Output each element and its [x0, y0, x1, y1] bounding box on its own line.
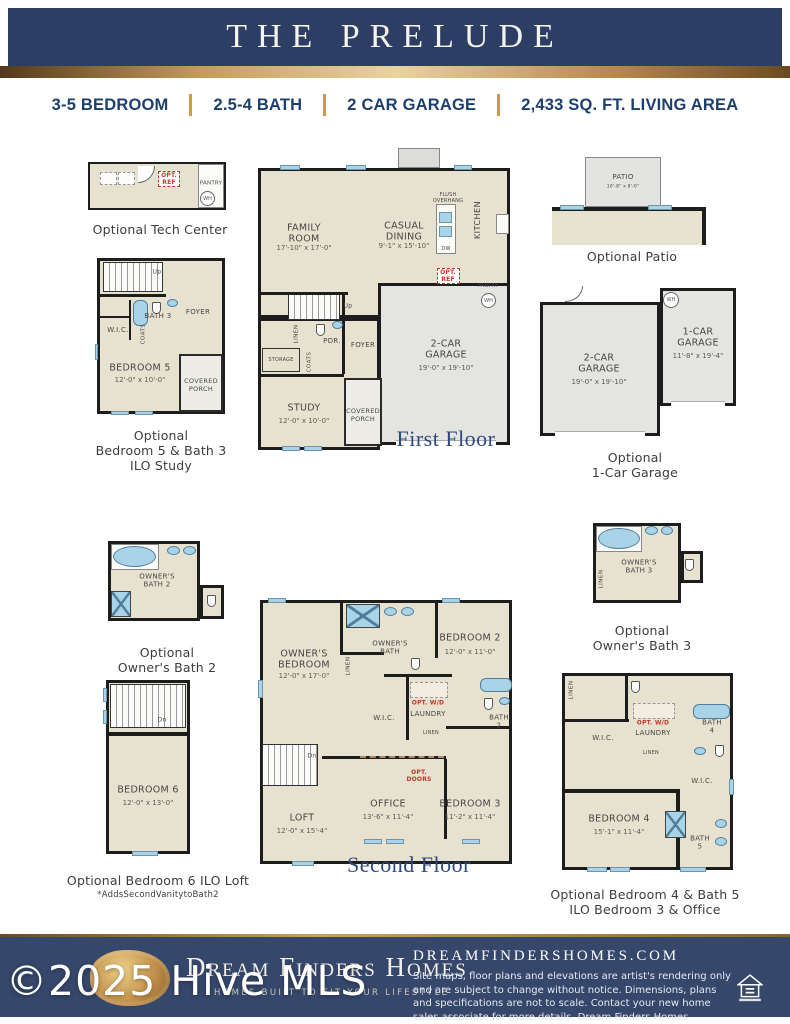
spec-separator	[189, 94, 192, 116]
mls-watermark: ©2025 Hive MLS	[6, 957, 367, 1005]
spec-garage: 2 CAR GARAGE	[347, 96, 476, 115]
window	[280, 165, 300, 170]
owners-bath3-caption: Optional Owner's Bath 3	[593, 623, 692, 653]
bedroom5-dim: 12'-0" x 10'-0"	[115, 376, 166, 384]
toilet	[631, 681, 640, 693]
opt-doors-opening	[360, 756, 444, 758]
stairs-down-label: Dn	[307, 752, 316, 759]
plan-optional-bedroom4-bath5: LINEN OPT. W/D LAUNDRY W.I.C. LINEN BATH…	[545, 663, 745, 915]
loft-dim: 12'-0" x 15'-4"	[277, 827, 328, 835]
window	[111, 411, 129, 415]
office-dim: 13'-6" x 11'-4"	[363, 813, 414, 821]
pantry-label: PANTRY	[200, 181, 222, 188]
window	[560, 205, 584, 210]
patio-caption: Optional Patio	[587, 249, 677, 264]
one-car-garage-label: 1-CAR GARAGE	[677, 327, 719, 350]
1car-garage-caption: Optional 1-Car Garage	[592, 450, 678, 480]
coats-label: COATS	[307, 352, 314, 373]
spec-bar: 3-5 BEDROOM 2.5-4 BATH 2 CAR GARAGE 2,43…	[0, 94, 790, 116]
wall	[260, 292, 348, 295]
patio-area	[585, 157, 661, 207]
plan-optional-1car-garage: WH 2-CAR GARAGE 19'-0" x 19'-10" 1-CAR G…	[535, 280, 743, 478]
garage-door-opening	[555, 431, 645, 438]
bathtub	[113, 546, 156, 567]
bath4-label: BATH 4	[702, 719, 722, 736]
bedroom6-caption: Optional Bedroom 6 ILO Loft	[67, 873, 249, 888]
bedroom4-label: BEDROOM 4	[588, 813, 649, 824]
bedroom4-caption: Optional Bedroom 4 & Bath 5 ILO Bedroom …	[550, 887, 739, 917]
window	[282, 446, 300, 451]
laundry-label: LAUNDRY	[635, 729, 670, 737]
shower	[346, 604, 380, 628]
kitchen-sink	[439, 226, 452, 237]
window	[103, 688, 107, 702]
spec-separator	[497, 94, 500, 116]
stairs-up	[103, 262, 163, 292]
family-room-dim: 17'-10" x 17'-0"	[276, 244, 331, 252]
powder-room-label: PDR.	[323, 337, 341, 345]
window	[364, 839, 382, 844]
toilet	[316, 324, 325, 336]
equal-housing-icon	[737, 974, 763, 1002]
patio-label: PATIO	[612, 173, 633, 181]
owners-bath3-label: OWNER'S BATH 3	[621, 559, 656, 576]
owners-bath-label: OWNER'S BATH	[372, 640, 407, 657]
two-car-garage-dim: 19'-0" x 19'-10"	[571, 378, 626, 386]
stairs-up-label: Up	[344, 302, 353, 309]
family-room-label: FAMILY ROOM	[287, 223, 321, 246]
garage-dim: 19'-0" x 19'-10"	[418, 364, 473, 372]
sink	[715, 837, 727, 846]
wic-label: W.I.C.	[107, 326, 129, 334]
washer-dryer-space	[410, 682, 448, 698]
shower	[111, 591, 131, 617]
porch-label: COVERED PORCH	[184, 378, 218, 394]
foyer-label: FOYER	[186, 308, 210, 316]
window	[268, 598, 286, 603]
spec-bath: 2.5-4 BATH	[213, 96, 302, 115]
window	[729, 779, 734, 795]
wall	[564, 789, 676, 793]
garage-label: 2-CAR GARAGE	[425, 339, 467, 362]
foyer-label: FOYER	[351, 341, 375, 349]
linen-label: LINEN	[294, 325, 301, 344]
window	[103, 710, 107, 724]
wall	[129, 300, 131, 340]
bath2-label: BATH 2	[489, 714, 509, 731]
wall	[340, 602, 343, 654]
kitchen-sink	[439, 212, 452, 223]
linen-label: LINEN	[423, 730, 439, 736]
sink	[384, 607, 397, 616]
spec-sqft: 2,433 SQ. FT. LIVING AREA	[521, 96, 738, 115]
wall	[108, 732, 188, 736]
sink	[715, 819, 727, 828]
owners-bedroom-dim: 12'-0" x 17'-0"	[279, 672, 330, 680]
bedroom6-dim: 12'-0" x 13'-0"	[123, 799, 174, 807]
garage-door-opening	[671, 401, 725, 408]
wall	[565, 719, 629, 722]
wic-label: W.I.C.	[373, 714, 395, 722]
window	[648, 205, 672, 210]
plan-second-floor: OWNER'S BEDROOM 12'-0" x 17'-0" OWNER'S …	[256, 596, 520, 888]
window	[680, 867, 706, 872]
chimney	[398, 148, 440, 168]
bedroom2-dim: 12'-0" x 11'-0"	[445, 648, 496, 656]
plan-optional-bedroom6: Dn BEDROOM 6 12'-0" x 13'-0" Optional Be…	[98, 670, 218, 902]
sink	[167, 299, 178, 307]
owners-bath2-label: OWNER'S BATH 2	[139, 573, 174, 590]
casual-dining-dim: 9'-1" x 15'-10"	[379, 242, 430, 250]
second-floor-title: Second Floor	[347, 852, 471, 878]
wall	[406, 676, 409, 740]
window	[132, 851, 158, 856]
wall	[260, 374, 344, 377]
wall	[435, 602, 438, 658]
casual-dining-label: CASUAL DINING	[384, 221, 424, 244]
owners-bath2-caption: Optional Owner's Bath 2	[118, 645, 217, 675]
sink	[499, 697, 510, 705]
wic-label: W.I.C.	[691, 777, 713, 785]
sink	[332, 321, 343, 329]
bathtub	[480, 678, 512, 692]
first-floor-title: First Floor	[396, 426, 495, 452]
tech-center-caption: Optional Tech Center	[93, 222, 228, 237]
plan-optional-owners-bath3: LINEN OWNER'S BATH 3 Optional Owner's Ba…	[585, 513, 725, 655]
opt-doors-label: OPT. DOORS	[406, 769, 431, 783]
water-heater: WH	[663, 292, 679, 308]
pantry-label: PANTRY	[478, 283, 498, 289]
bedroom2-label: BEDROOM 2	[439, 632, 500, 643]
stairs-down	[110, 684, 186, 728]
linen-label: LINEN	[569, 681, 576, 700]
toilet	[207, 595, 216, 607]
water-heater: WH	[481, 293, 496, 308]
plan-optional-bedroom5-bath3: Up BATH 3 FOYER W.I.C. COATS BEDROOM 5 1…	[95, 256, 231, 472]
sink	[645, 526, 658, 535]
loft-label: LOFT	[290, 812, 315, 823]
window	[454, 165, 472, 170]
window	[610, 867, 630, 872]
stairs-down-label: Dn	[157, 716, 166, 723]
toilet	[715, 745, 724, 757]
door-arc	[565, 286, 583, 302]
bedroom3-label: BEDROOM 3	[439, 798, 500, 809]
toilet	[484, 698, 493, 710]
house-wall-strip	[552, 207, 706, 245]
stairs-up-label: Up	[153, 268, 162, 275]
shower	[665, 811, 686, 838]
window	[304, 446, 322, 451]
window	[258, 680, 263, 698]
sink	[167, 546, 180, 555]
water-heater: WH	[200, 191, 215, 206]
legal-disclaimer: Site maps, floor plans and elevations ar…	[413, 970, 731, 1024]
gold-divider-bar	[0, 66, 790, 78]
plan-optional-patio: PATIO 10'-8" x 8'-0" Optional Patio	[552, 155, 712, 267]
porch-label: COVERED PORCH	[346, 408, 380, 424]
wic-label: W.I.C.	[592, 734, 614, 742]
bedroom6-note: *AddsSecondVanitytoBath2	[97, 890, 218, 901]
wall	[384, 674, 452, 677]
window	[442, 598, 460, 603]
linen-label: LINEN	[599, 570, 606, 589]
wall	[99, 316, 131, 318]
bath5-label: BATH 5	[690, 835, 710, 852]
kitchen-label: KITCHEN	[473, 201, 483, 239]
toilet	[685, 559, 694, 571]
storage-label: STORAGE	[268, 357, 293, 363]
bathtub	[693, 704, 730, 719]
dishwasher-label: DW	[441, 246, 450, 252]
stairs-down	[262, 744, 318, 786]
linen-label: LINEN	[643, 750, 659, 756]
cabinet	[118, 172, 135, 185]
study-label: STUDY	[288, 402, 321, 413]
spec-bedroom: 3-5 BEDROOM	[52, 96, 169, 115]
opt-wd-label: OPT. W/D	[637, 719, 669, 726]
sink	[183, 546, 196, 555]
study-dim: 12'-0" x 10'-0"	[279, 417, 330, 425]
window	[386, 839, 404, 844]
owners-bedroom-label: OWNER'S BEDROOM	[278, 649, 330, 672]
window	[95, 344, 98, 360]
flush-overhang-label: FLUSH OVERHANG	[433, 192, 463, 204]
coats-label: COATS	[141, 324, 148, 345]
stairs-up	[288, 294, 340, 320]
range	[496, 214, 509, 234]
sink	[694, 747, 706, 755]
window	[587, 867, 607, 872]
bathtub	[598, 528, 640, 549]
plan-optional-tech-center: OPT. REF PANTRY WH Optional Tech Center	[88, 158, 232, 242]
plan-optional-owners-bath2: OWNER'S BATH 2 Optional Owner's Bath 2	[105, 533, 231, 673]
bedroom3-dim: 11'-2" x 11'-4"	[445, 813, 496, 821]
opt-ref-label: OPT. REF	[440, 269, 456, 283]
bedroom5-label: BEDROOM 5	[109, 362, 170, 373]
washer-dryer-space	[633, 703, 675, 719]
sink	[401, 607, 414, 616]
laundry-label: LAUNDRY	[410, 710, 445, 718]
page-title: THE PRELUDE	[226, 18, 564, 56]
opt-wd-label: OPT. W/D	[412, 699, 444, 706]
website-link[interactable]: DREAMFINDERSHOMES.COM	[413, 948, 679, 965]
bedroom5-caption: Optional Bedroom 5 & Bath 3 ILO Study	[96, 428, 227, 473]
window	[462, 839, 480, 844]
bedroom4-dim: 15'-1" x 11'-4"	[594, 828, 645, 836]
opt-ref-label: OPT. REF	[161, 172, 177, 186]
toilet	[411, 658, 420, 670]
bedroom6-label: BEDROOM 6	[117, 784, 178, 795]
office-label: OFFICE	[370, 798, 406, 809]
wall	[100, 294, 166, 297]
linen-label: LINEN	[346, 657, 353, 676]
window	[346, 165, 366, 170]
window	[135, 411, 153, 415]
wall	[625, 675, 628, 721]
flyer-page: THE PRELUDE 3-5 BEDROOM 2.5-4 BATH 2 CAR…	[0, 0, 790, 1024]
header-banner: THE PRELUDE	[8, 8, 782, 66]
window	[292, 861, 314, 866]
spec-separator	[323, 94, 326, 116]
bath3-label: BATH 3	[144, 312, 171, 320]
plan-first-floor: FAMILY ROOM 17'-10" x 17'-0" CASUAL DINI…	[256, 148, 516, 460]
sink	[661, 526, 673, 535]
patio-dim: 10'-8" x 8'-0"	[607, 184, 640, 189]
one-car-garage-dim: 11'-8" x 19'-4"	[673, 352, 724, 360]
two-car-garage-label: 2-CAR GARAGE	[578, 353, 620, 376]
cabinet	[100, 172, 117, 185]
